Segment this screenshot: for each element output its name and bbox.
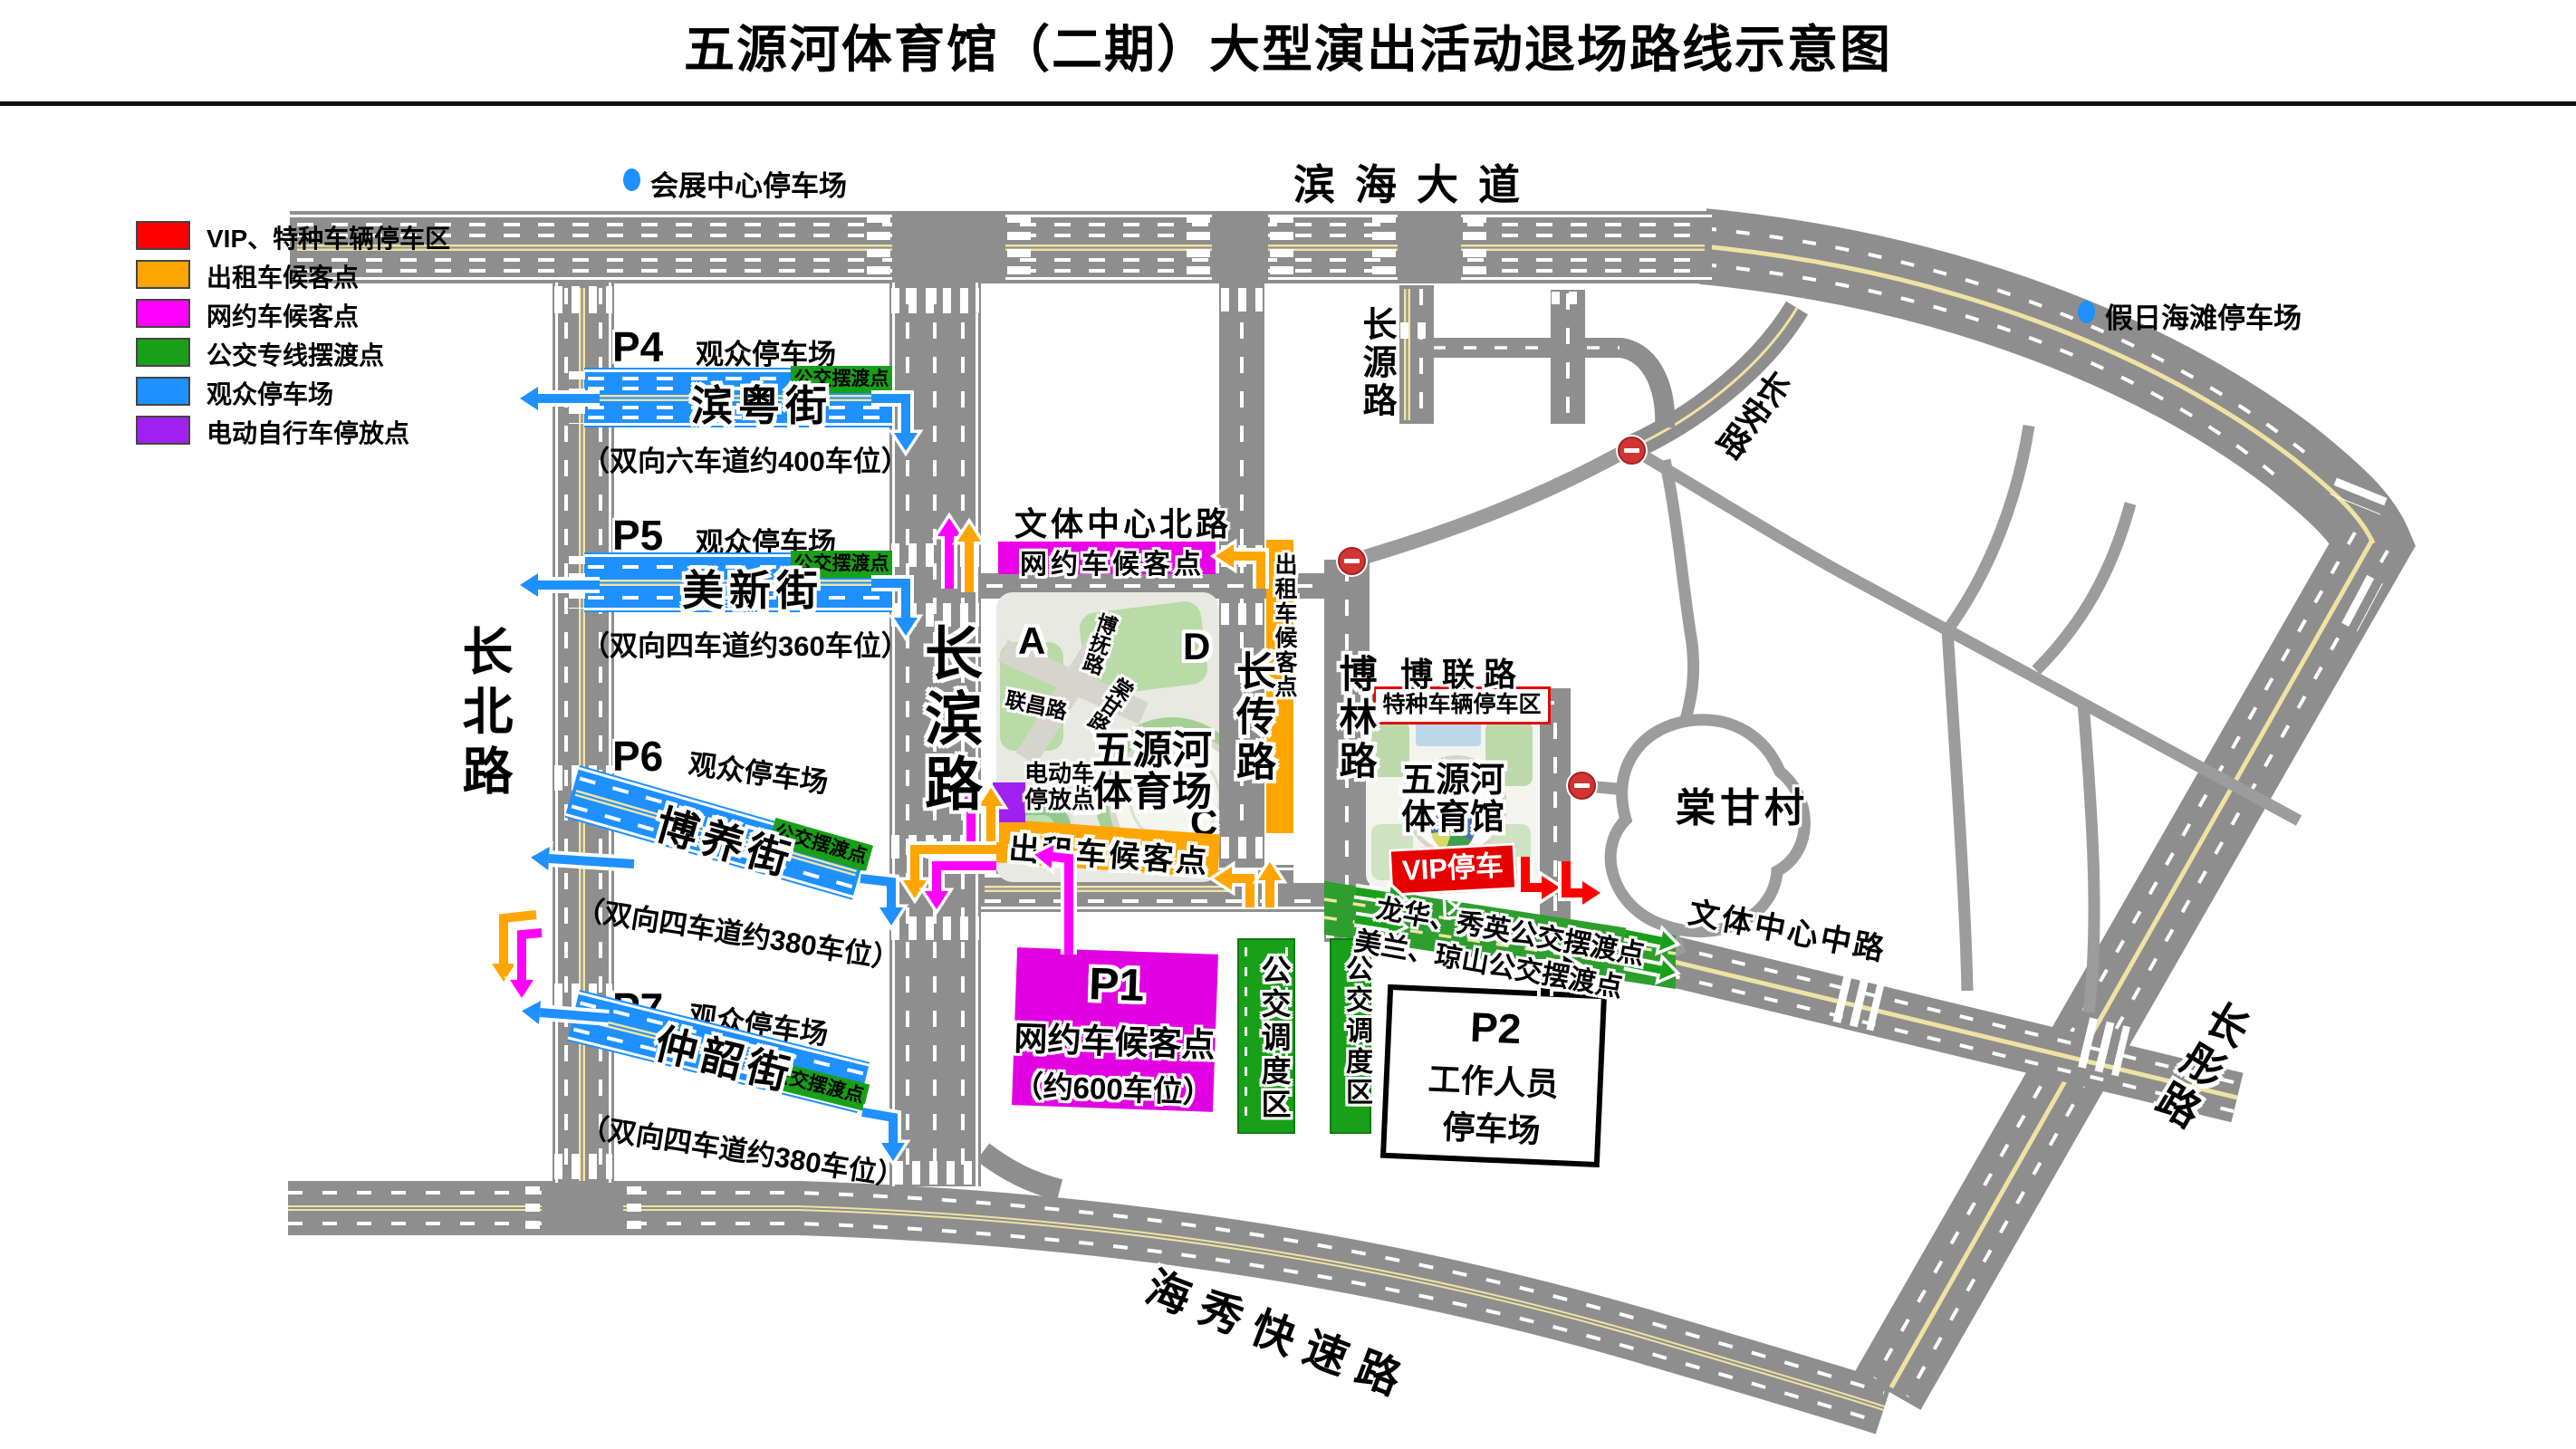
road-label-bolian: 博联路 — [1400, 648, 1525, 696]
village-label: 棠甘村 — [1676, 775, 1809, 833]
flow-arrow — [925, 866, 996, 909]
flow-arrow — [871, 398, 918, 451]
flow-arrows-layer — [0, 0, 2576, 1449]
road-label-bolin: 博林路 — [1328, 654, 1383, 784]
flow-arrow — [520, 573, 600, 597]
flow-arrow — [522, 1001, 609, 1024]
road-label-changchuan: 长传路 — [1223, 650, 1281, 786]
no-entry-sign-village — [1568, 772, 1596, 800]
flow-arrow — [860, 878, 903, 926]
flow-arrow — [1214, 867, 1250, 907]
flow-arrow — [510, 933, 542, 998]
flow-arrow — [937, 518, 961, 589]
flow-arrow — [1258, 862, 1282, 907]
flow-arrow — [531, 847, 634, 870]
road-label-wenti-north: 文体中心北路 — [1014, 498, 1232, 545]
flow-arrow — [1525, 857, 1560, 899]
flow-arrow — [957, 523, 981, 592]
flow-arrow — [862, 1112, 905, 1161]
road-label-changyuan: 长源路 — [1351, 306, 1401, 420]
exit-route-map: P4 观众停车场 公交摆渡点 滨粤街 （双向六车道约400车位） P5 观众停车… — [0, 0, 2576, 1449]
flow-arrow — [520, 387, 600, 410]
flow-arrow — [1216, 544, 1261, 589]
no-entry-sign-changan — [1618, 437, 1646, 465]
road-label-changbei: 长北路 — [447, 625, 521, 804]
road-label-changbin: 长滨路 — [908, 623, 991, 819]
flow-arrow — [1034, 845, 1069, 955]
flow-arrow — [1566, 861, 1600, 905]
no-entry-sign-bolin — [1338, 547, 1366, 575]
